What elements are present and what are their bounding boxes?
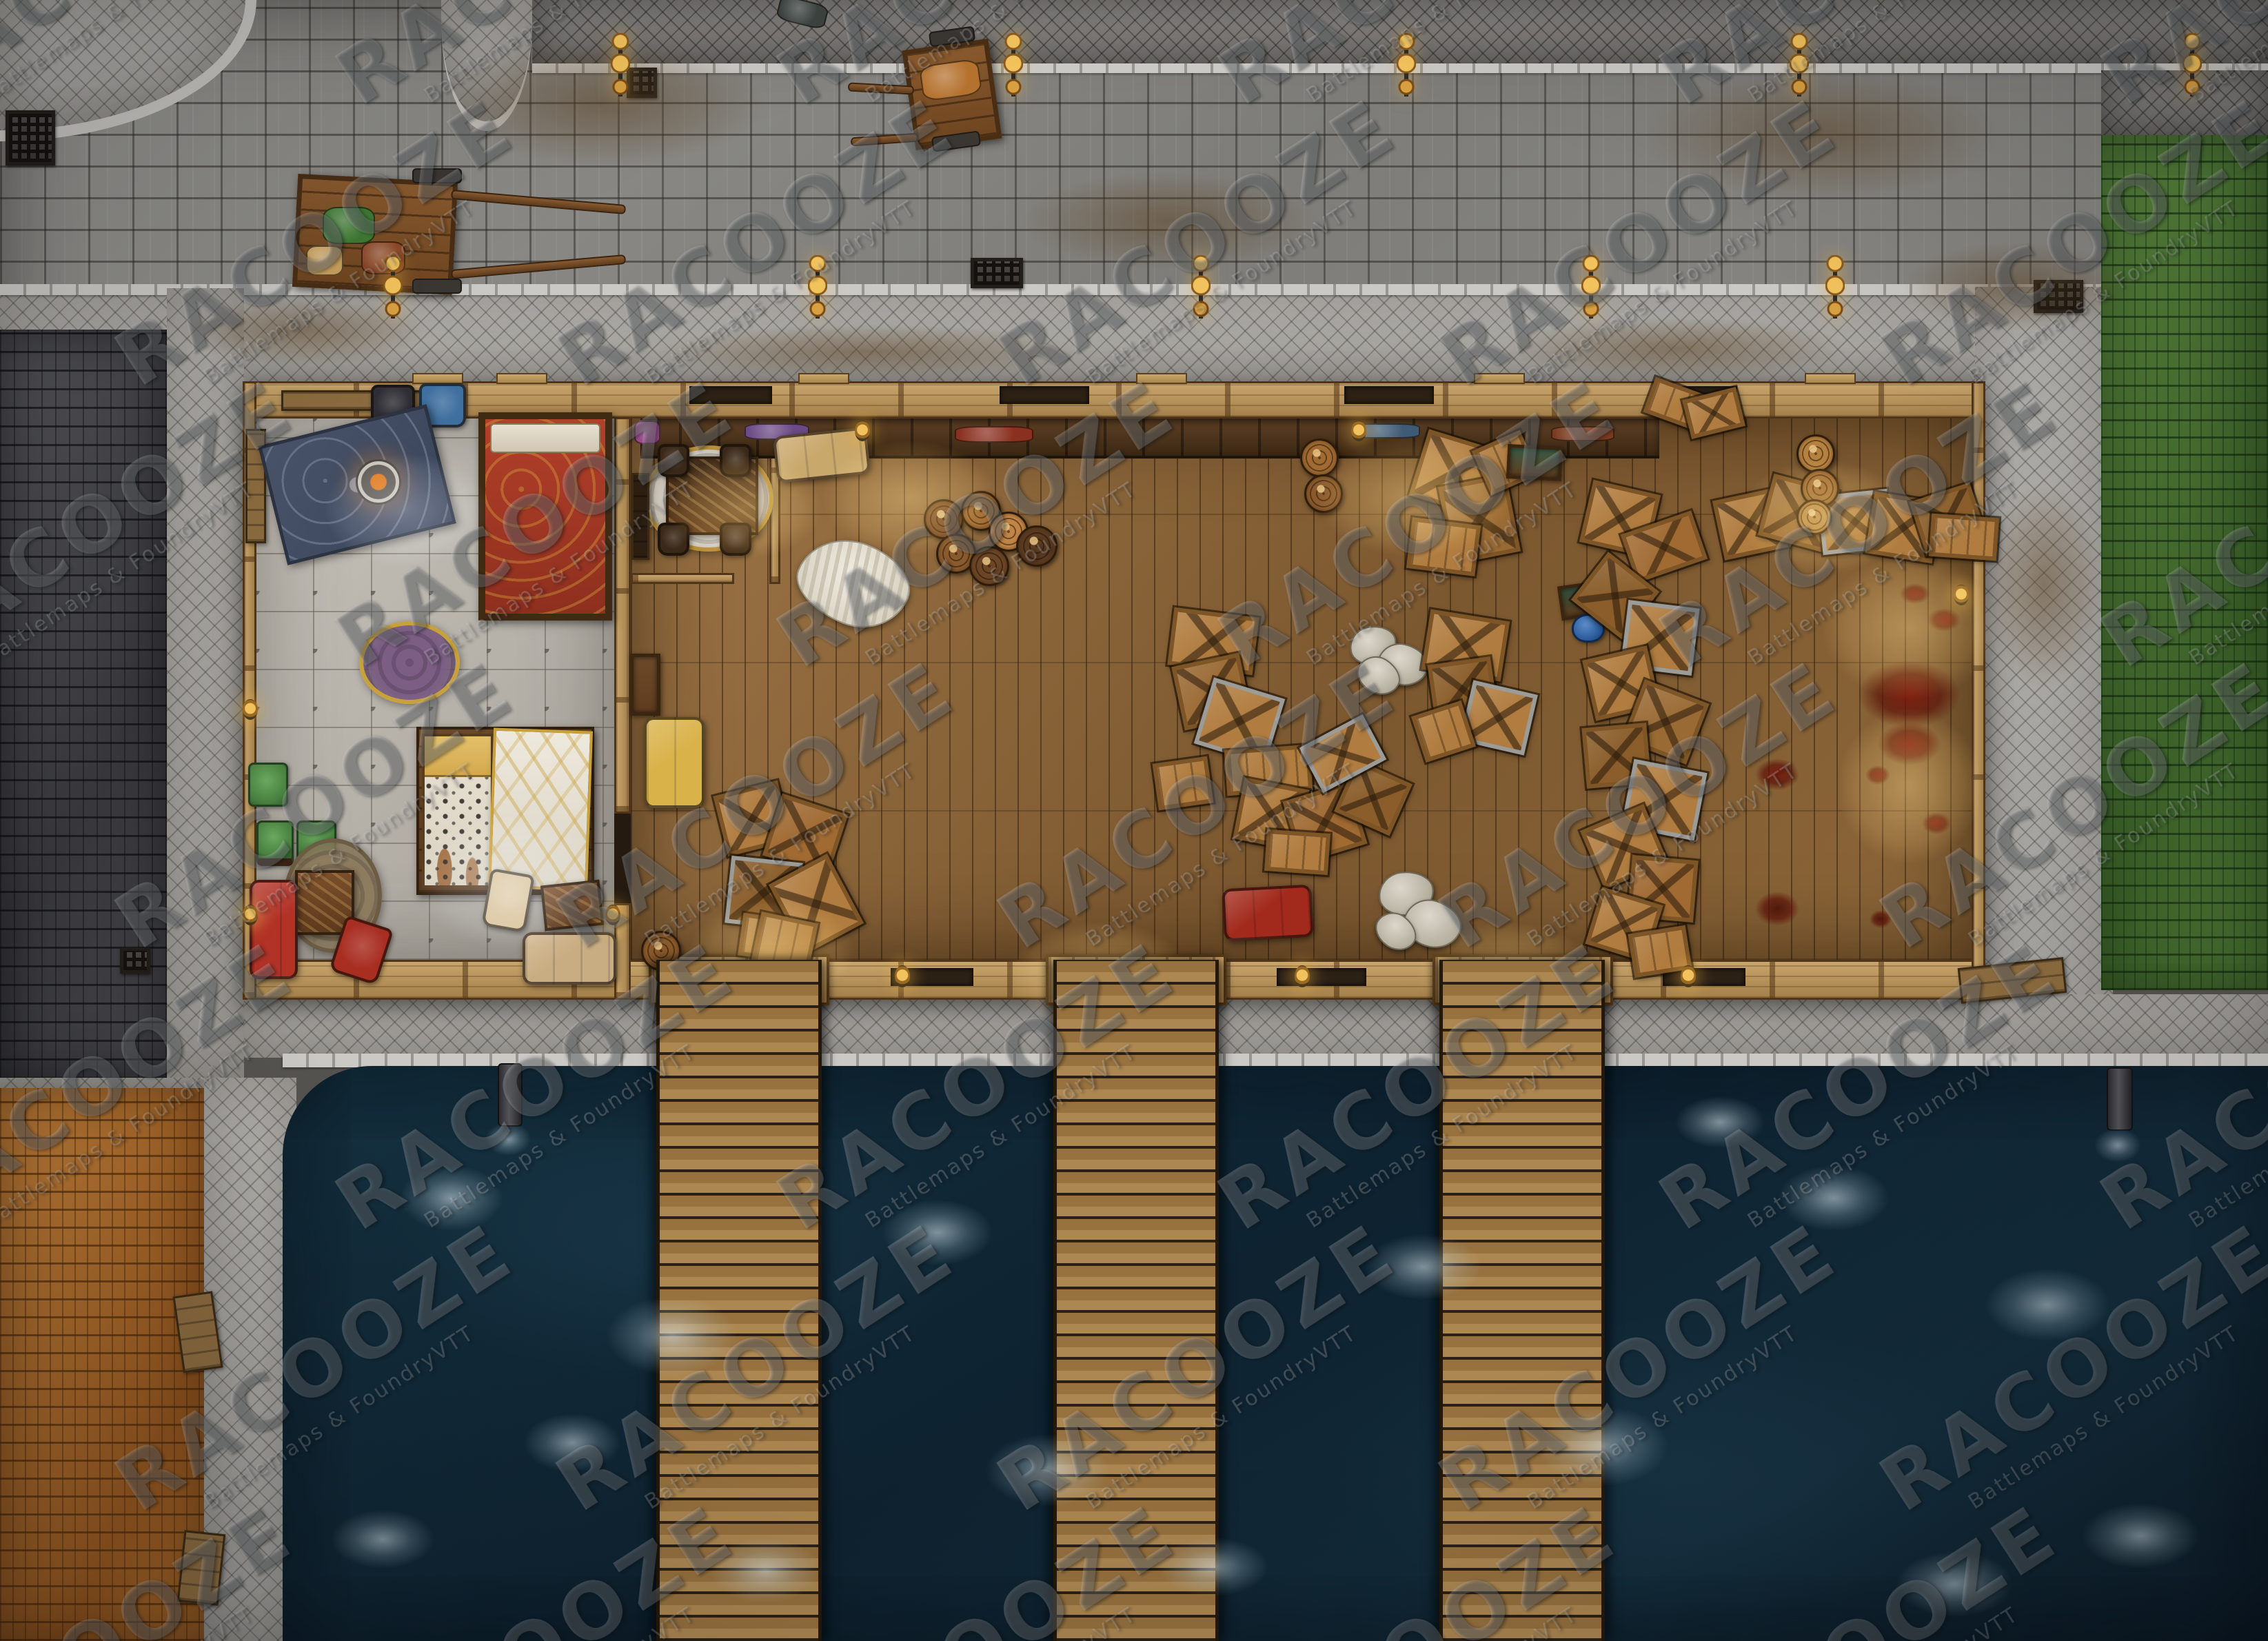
mud-stain	[1903, 241, 2130, 331]
couch-gold	[644, 717, 705, 808]
roof-green-east	[2101, 135, 2268, 990]
door-step	[1474, 373, 1525, 384]
door-step	[1805, 373, 1856, 384]
street-lamp	[1825, 255, 1845, 319]
foam-patch	[1779, 1165, 1889, 1231]
wall-lamp	[895, 965, 910, 987]
foam-patch	[524, 1413, 620, 1472]
street-lamp	[1790, 33, 1809, 97]
battlemap: RACOOZEBattlemaps & FoundryVTTRACOOZEBat…	[0, 0, 2268, 1641]
cart-cargo-sack	[306, 245, 343, 276]
street-lamp	[611, 33, 630, 97]
rug-round-purple	[359, 621, 460, 704]
wall-lamp	[1295, 965, 1310, 987]
mud-stain	[1020, 172, 1317, 269]
drain-pipe	[498, 1063, 523, 1127]
sofa-wine-torn	[1222, 885, 1314, 942]
foam-patch	[400, 1165, 503, 1231]
drain-grate	[971, 258, 1023, 288]
shelf-item	[1551, 426, 1614, 441]
mud-stain	[1503, 317, 1847, 379]
cart-axle	[412, 168, 462, 183]
bench-plank	[177, 1530, 226, 1606]
cart-axle	[412, 279, 462, 294]
crate-lid	[1153, 756, 1214, 810]
lamplight	[641, 439, 848, 576]
sidewalk-west	[167, 288, 244, 1079]
blood-dried	[1755, 892, 1799, 926]
door-step	[412, 373, 463, 384]
sidewalk-south	[244, 994, 2268, 1058]
foam-patch	[1896, 1551, 2013, 1617]
drain-grate	[120, 947, 150, 974]
mud-stain	[1641, 69, 1999, 200]
window-slot	[689, 386, 772, 404]
lamplight	[1282, 418, 1544, 576]
street-lamp	[1397, 33, 1416, 97]
door-step	[496, 373, 547, 384]
curb-harbor	[283, 1054, 2268, 1067]
sofa-red	[250, 880, 298, 979]
barrel-dark	[1016, 525, 1057, 567]
door-step	[798, 373, 849, 384]
drain-grate	[6, 110, 55, 165]
blood-spatter	[1755, 758, 1799, 790]
wall-lamp	[243, 905, 258, 925]
daylight	[386, 793, 634, 972]
drain-pipe	[2107, 1067, 2133, 1131]
foam-patch	[1985, 1269, 2109, 1341]
roof-orange-sw	[0, 1088, 204, 1641]
foam-patch	[1158, 1538, 1268, 1596]
window-slot	[1277, 968, 1366, 986]
goods-cart	[292, 174, 458, 295]
window-slot	[1344, 386, 1434, 404]
mud-stain	[655, 324, 1082, 379]
foam-patch	[882, 1200, 993, 1265]
wall-divider-upper	[614, 417, 631, 814]
pipe-splash	[2094, 1128, 2141, 1162]
street-lamp	[1581, 255, 1601, 319]
blood-dried	[1870, 910, 1892, 928]
foam-patch	[607, 1296, 738, 1376]
street-lamp	[808, 255, 827, 319]
wall-lamp	[243, 699, 258, 720]
chair-green	[256, 820, 294, 866]
pier-east	[1439, 960, 1605, 1641]
foam-patch	[1365, 1234, 1482, 1300]
door-step	[1136, 373, 1187, 384]
wall-lamp	[1681, 965, 1696, 987]
chest	[630, 654, 660, 716]
foam-patch	[331, 1510, 434, 1569]
street-lamp	[2183, 33, 2202, 97]
crate-lid	[1264, 829, 1330, 875]
street-lamp	[1004, 33, 1023, 97]
office-wall-south	[631, 573, 734, 584]
pipe-splash	[485, 1122, 531, 1156]
foam-patch	[2082, 1503, 2199, 1569]
lamplight	[1813, 683, 2006, 889]
foam-patch	[1675, 1096, 1765, 1148]
foam-patch	[986, 1434, 1110, 1507]
daylight	[296, 434, 517, 586]
cushion-green	[248, 763, 288, 807]
window-slot	[1000, 386, 1089, 404]
mud-stain	[441, 41, 765, 165]
street-lamp	[1191, 255, 1211, 319]
foam-patch	[1537, 1407, 1668, 1486]
foam-patch	[710, 1538, 820, 1603]
cart-cargo-green	[323, 207, 375, 244]
street-lamp	[383, 255, 403, 319]
flower-pot	[634, 421, 660, 444]
